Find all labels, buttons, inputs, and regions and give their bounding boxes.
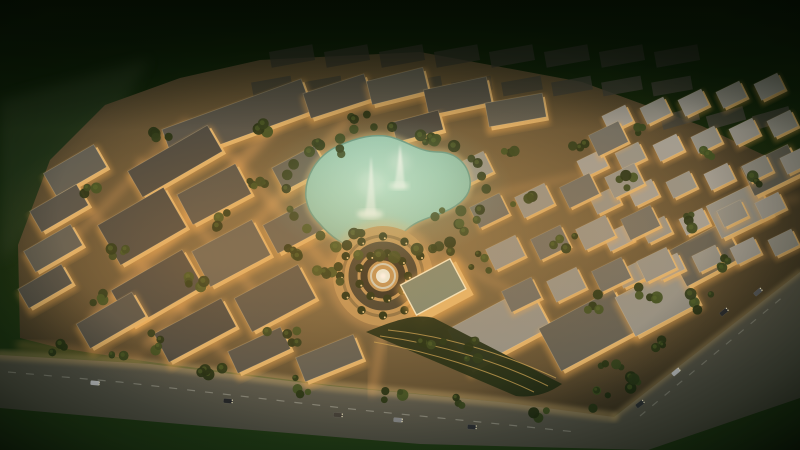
scene-canvas	[0, 0, 800, 450]
aerial-night-render	[0, 0, 800, 450]
vignette	[0, 0, 800, 450]
edge-vignette	[0, 0, 800, 450]
